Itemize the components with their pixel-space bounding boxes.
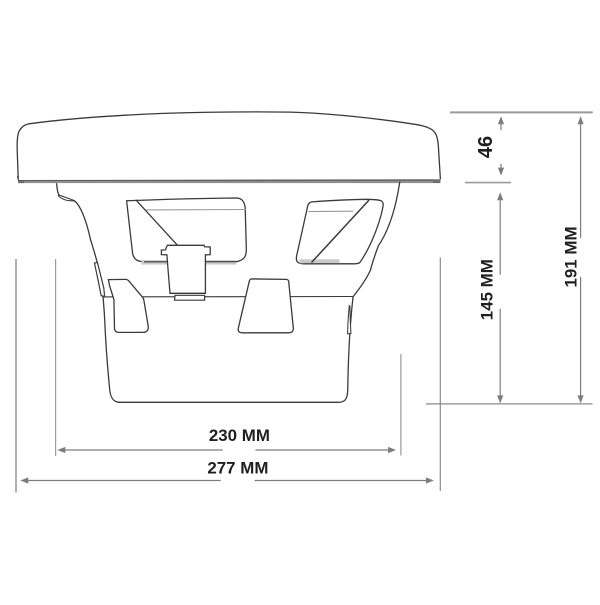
svg-text:191 MM: 191 MM: [562, 226, 581, 287]
svg-text:145 MM: 145 MM: [478, 259, 497, 320]
svg-text:230 MM: 230 MM: [209, 426, 270, 445]
svg-text:277 MM: 277 MM: [207, 458, 268, 477]
svg-text:46: 46: [475, 136, 497, 158]
